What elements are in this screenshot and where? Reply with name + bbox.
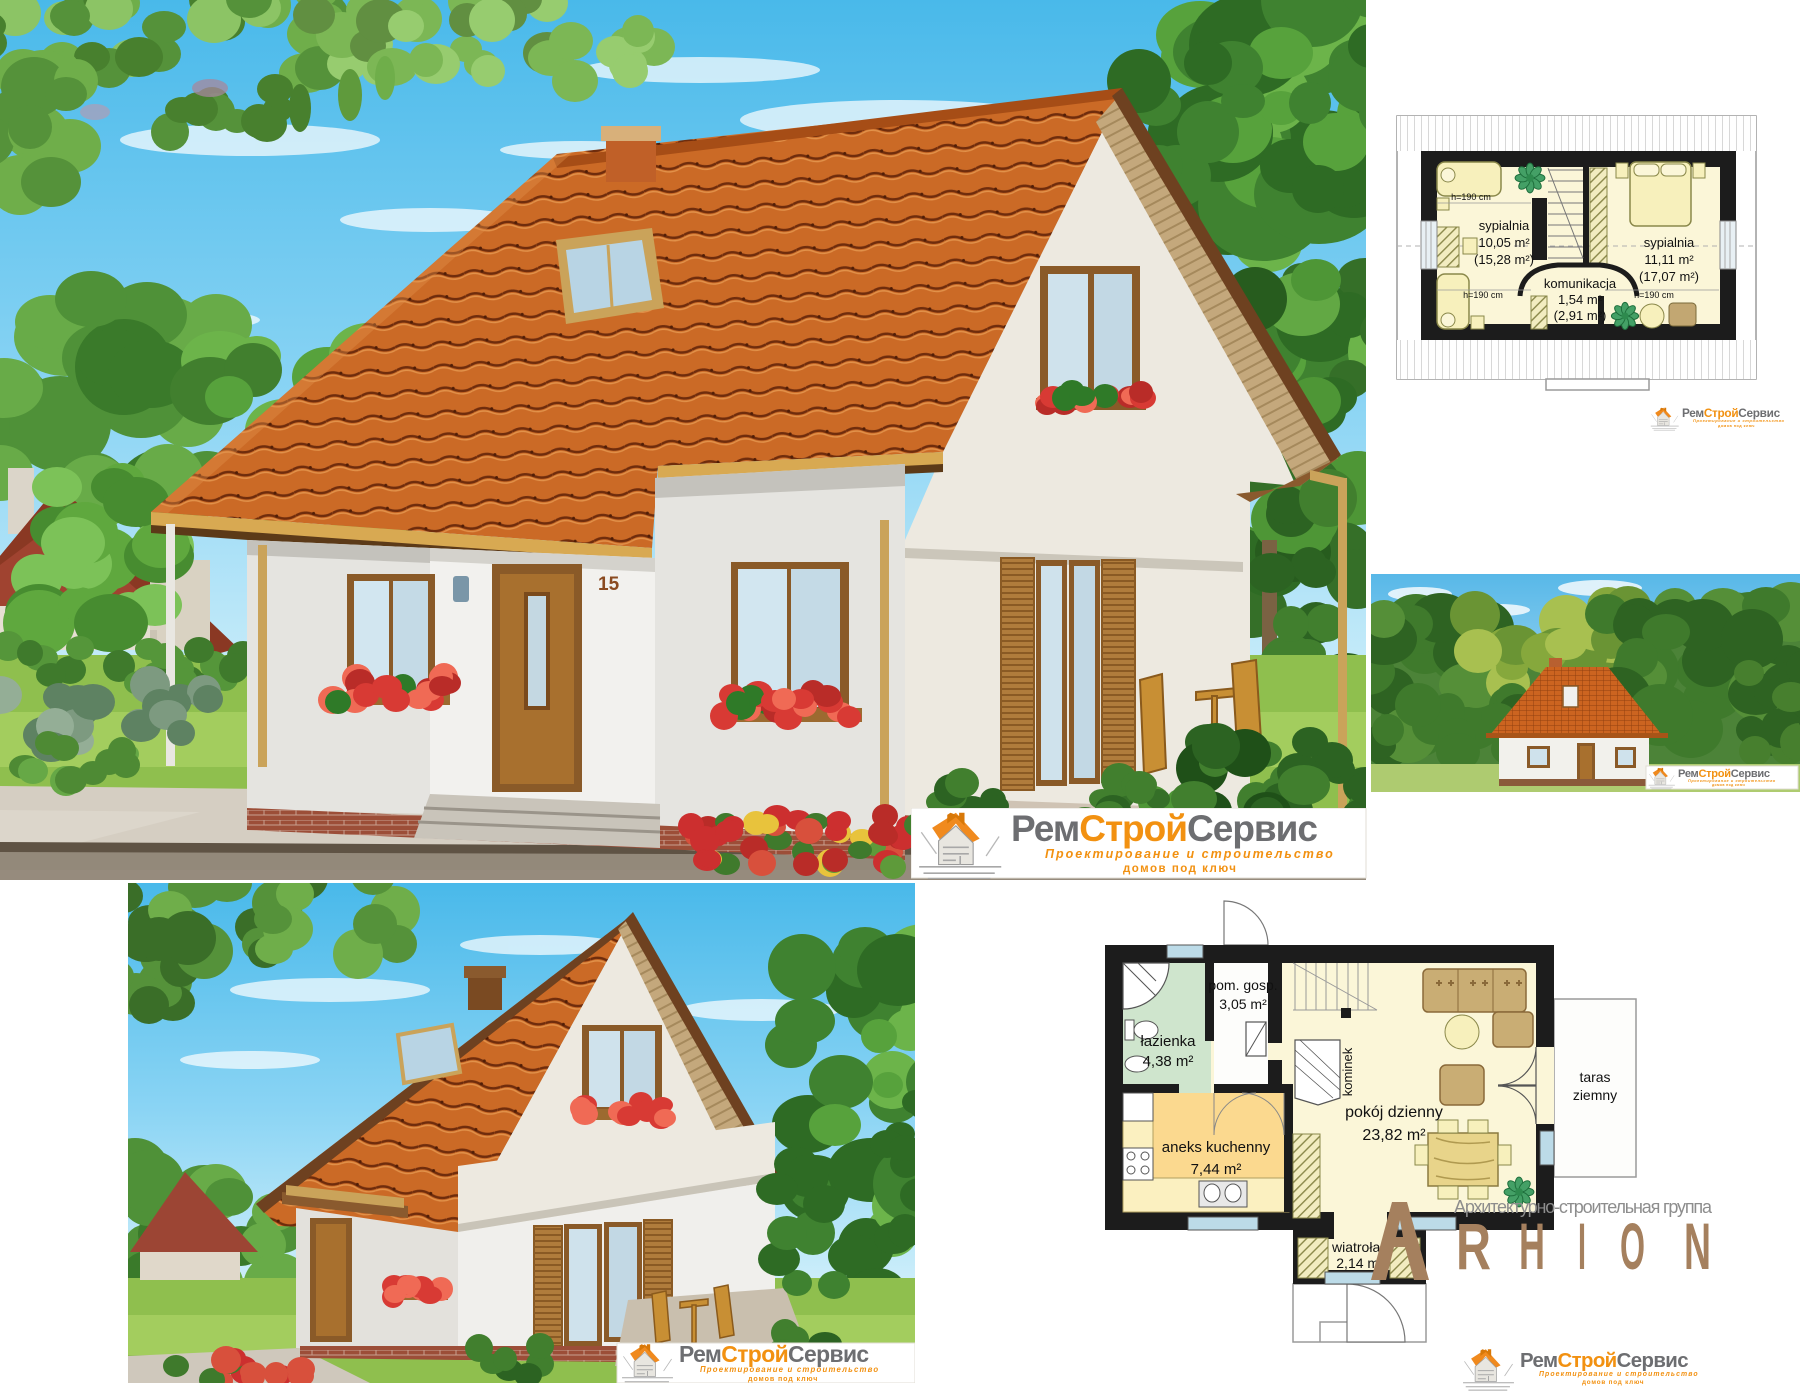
svg-text:kominek: kominek — [1340, 1047, 1355, 1096]
svg-text:домов под ключ: домов под ключ — [748, 1375, 818, 1383]
svg-text:Проектирование и строительст: Проектирование и строительство — [1045, 847, 1335, 861]
svg-text:(2,91 m²): (2,91 m²) — [1554, 308, 1607, 323]
svg-text:I: I — [1578, 1209, 1586, 1283]
svg-text:pokój dzienny: pokój dzienny — [1345, 1104, 1443, 1121]
svg-text:aneks kuchenny: aneks kuchenny — [1162, 1139, 1271, 1156]
svg-text:4,38 m²: 4,38 m² — [1143, 1053, 1194, 1070]
svg-text:домов под ключ: домов под ключ — [1712, 783, 1745, 787]
svg-text:łazienka: łazienka — [1140, 1033, 1196, 1050]
svg-text:РемСтройСервис: РемСтройСервис — [679, 1341, 869, 1367]
svg-text:sypialnia: sypialnia — [1644, 235, 1695, 250]
svg-text:10,05 m²: 10,05 m² — [1478, 235, 1530, 250]
svg-text:pom. gosp.: pom. gosp. — [1208, 977, 1277, 993]
svg-text:3,05 m²: 3,05 m² — [1219, 996, 1267, 1012]
svg-text:Проектирование и строительст: Проектирование и строительство — [700, 1365, 879, 1374]
svg-text:O: O — [1620, 1209, 1645, 1283]
svg-text:komunikacja: komunikacja — [1544, 276, 1617, 291]
svg-text:Проектирование и строительст: Проектирование и строительство — [1693, 418, 1785, 423]
svg-text:(15,28 m²): (15,28 m²) — [1474, 252, 1534, 267]
svg-text:11,11 m²: 11,11 m² — [1644, 252, 1694, 267]
svg-text:Проектирование и строительст: Проектирование и строительство — [1539, 1371, 1699, 1378]
svg-text:h=190 cm: h=190 cm — [1451, 192, 1491, 202]
svg-text:sypialnia: sypialnia — [1479, 218, 1530, 233]
svg-text:R: R — [1456, 1209, 1491, 1283]
svg-text:15: 15 — [598, 574, 620, 595]
svg-text:домов под ключ: домов под ключ — [1718, 424, 1755, 428]
svg-text:h=190 cm: h=190 cm — [1463, 290, 1503, 300]
svg-text:N: N — [1684, 1209, 1711, 1283]
svg-text:РемСтройСервис: РемСтройСервис — [1520, 1350, 1688, 1372]
svg-text:7,44 m²: 7,44 m² — [1191, 1161, 1242, 1178]
svg-text:23,82 m²: 23,82 m² — [1362, 1127, 1426, 1144]
svg-text:домов под ключ: домов под ключ — [1123, 863, 1237, 875]
svg-text:H: H — [1519, 1209, 1545, 1283]
svg-text:taras: taras — [1579, 1069, 1610, 1085]
svg-text:РемСтройСервис: РемСтройСервис — [1011, 808, 1317, 849]
svg-text:h=190 cm: h=190 cm — [1634, 290, 1674, 300]
svg-text:ziemny: ziemny — [1573, 1087, 1617, 1103]
svg-text:домов под ключ: домов под ключ — [1582, 1379, 1644, 1386]
svg-text:1,54 m²: 1,54 m² — [1558, 292, 1603, 307]
svg-text:(17,07 m²): (17,07 m²) — [1639, 269, 1699, 284]
